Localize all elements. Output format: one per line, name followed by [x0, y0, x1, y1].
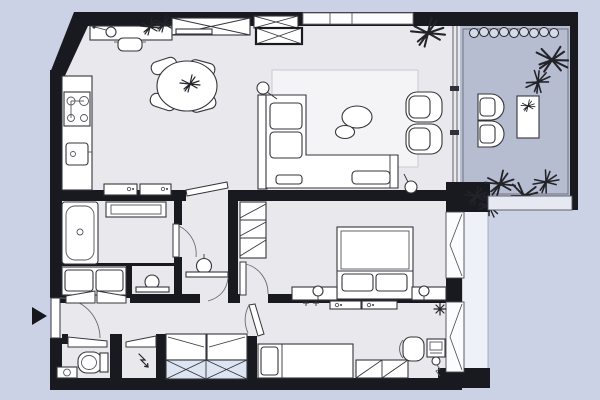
- hall-open-wardrobes: [166, 334, 247, 360]
- armchair: [406, 124, 442, 154]
- balcony-planter-row: [470, 28, 559, 38]
- bedside-lamp-icon: [419, 286, 429, 296]
- floor-plan-svg: [0, 0, 600, 400]
- desk: [427, 339, 445, 357]
- balcony-floor: [460, 26, 572, 198]
- entrance-arrow-icon: [32, 307, 47, 325]
- bedroom-window: [446, 212, 464, 278]
- cooktop: [64, 92, 90, 126]
- stool: [114, 38, 146, 51]
- kids-room-window: [446, 302, 464, 372]
- hall-crossed-wardrobe: [166, 360, 247, 379]
- single-bed: [258, 344, 353, 378]
- ceiling-light-icon: [434, 303, 446, 315]
- outdoor-chair: [478, 121, 504, 147]
- window-sill-band: [462, 208, 488, 376]
- toilet: [78, 352, 108, 373]
- pillow: [376, 274, 407, 291]
- top-wall-window: [303, 13, 413, 24]
- bedside-lamp-icon: [313, 286, 323, 296]
- pillow: [261, 347, 278, 375]
- low-dresser: [356, 360, 408, 378]
- hand-basin: [57, 367, 77, 378]
- nightstand: [292, 286, 337, 300]
- outdoor-chair: [478, 94, 504, 120]
- pillow: [342, 274, 373, 291]
- dining-set: [149, 56, 218, 114]
- double-bed: [337, 227, 413, 299]
- washer-cabinet: [106, 202, 166, 217]
- armchair: [406, 92, 442, 122]
- kitchen-low-cabinets: [104, 184, 171, 195]
- bathtub: [62, 202, 98, 264]
- balcony-railing-band: [488, 196, 572, 210]
- bedroom-wardrobe: [240, 202, 266, 258]
- nightstand: [412, 286, 446, 300]
- kitchen-sink: [66, 143, 92, 165]
- outdoor-table: [517, 96, 539, 138]
- floor-plan-canvas: [0, 0, 600, 400]
